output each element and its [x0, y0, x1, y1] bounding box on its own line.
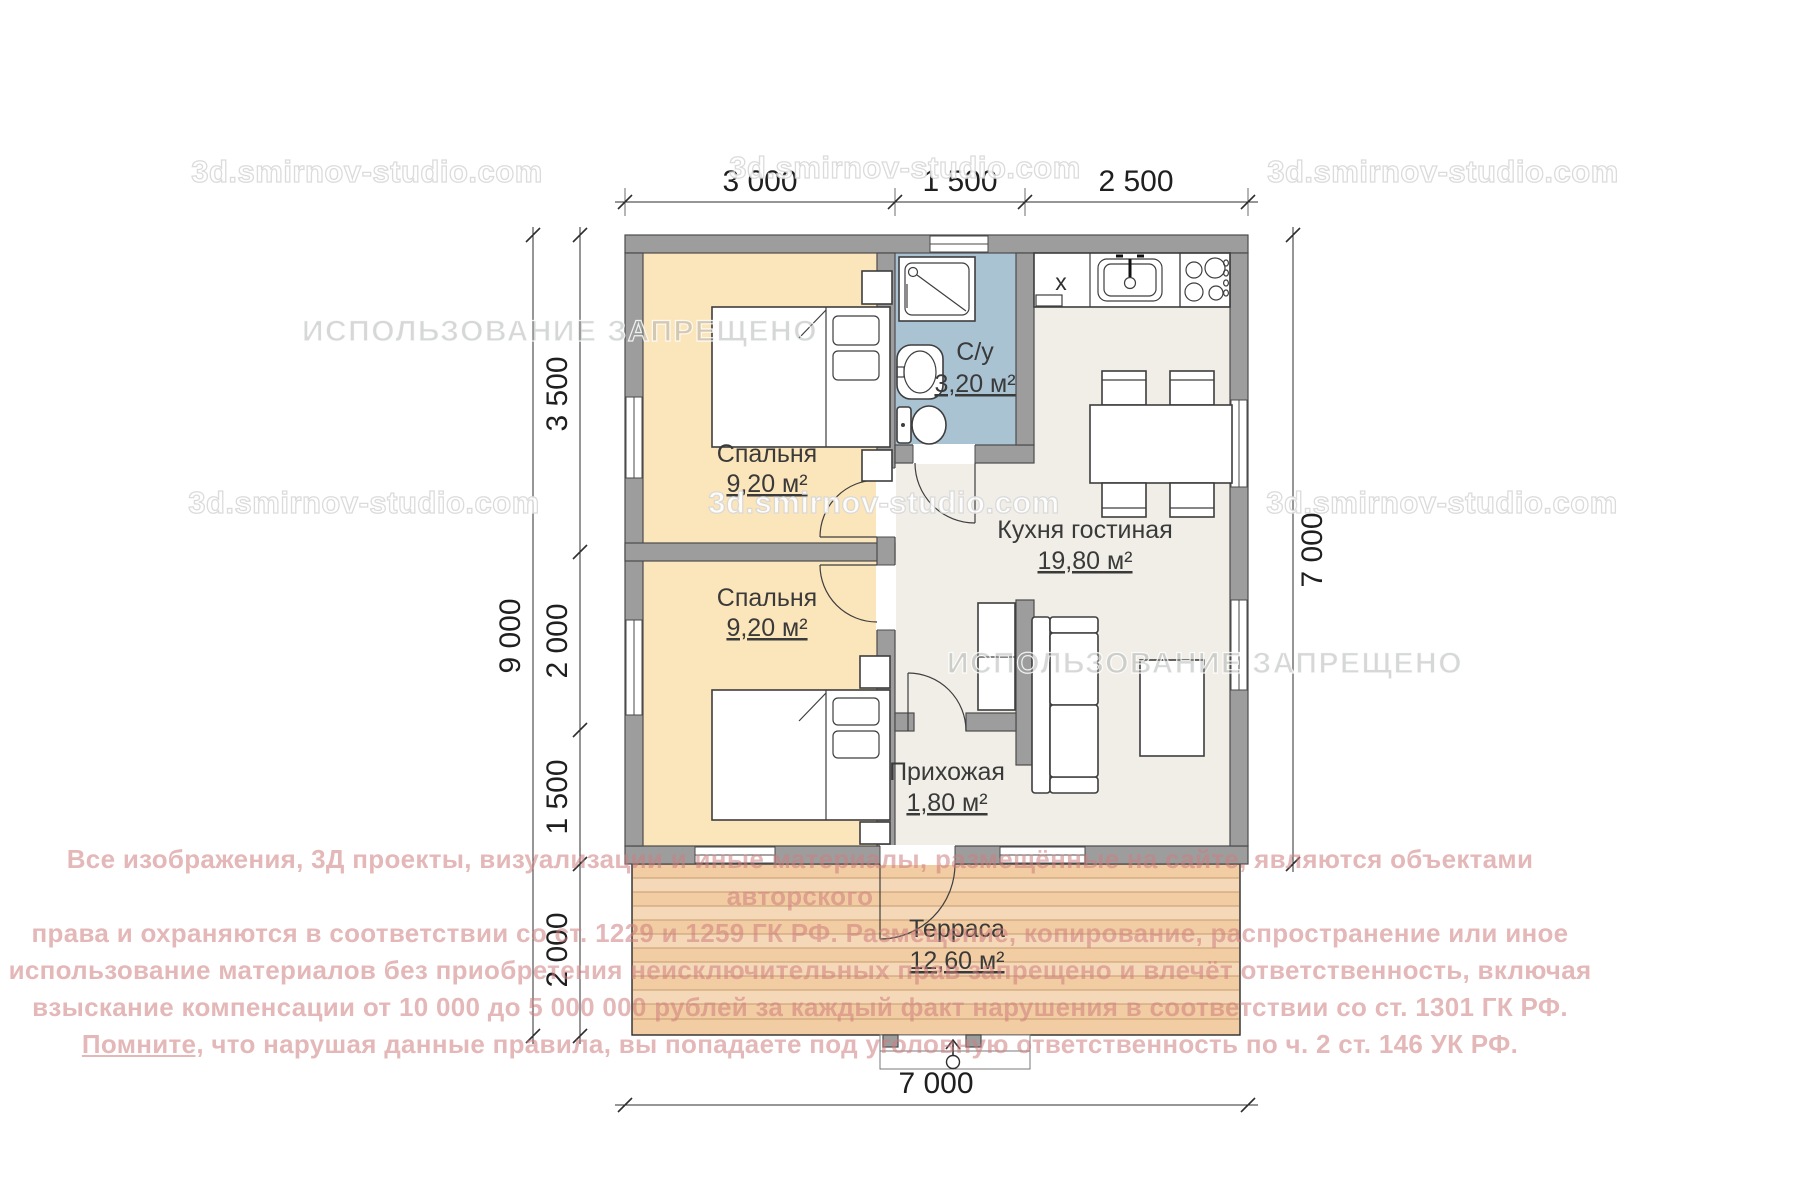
bed	[712, 307, 890, 447]
coffee-table	[1140, 660, 1204, 756]
dim-right-label: 7 000	[1296, 512, 1329, 587]
dim-left-segments: 3 500 2 000 1 500 2 000	[541, 227, 587, 1044]
dining-chair	[1170, 483, 1214, 517]
bedroom1-label: Спальня	[717, 440, 817, 468]
living-window-bottom	[1000, 847, 1085, 863]
hallway-cabinet	[978, 603, 1015, 710]
terrace-plank-band	[633, 878, 1239, 892]
bedroom1-area: 9,20 м²	[726, 470, 807, 498]
dining-table	[1090, 405, 1232, 483]
terrace-plank-band	[633, 990, 1239, 1004]
dining-chair	[1102, 483, 1146, 517]
dim-top-2: 1 500	[922, 165, 997, 198]
living-window-right-bottom	[1231, 600, 1247, 690]
hallway-label: Прихожая	[889, 758, 1005, 786]
dim-left-4: 2 000	[541, 912, 574, 987]
dim-top-3: 2 500	[1098, 165, 1173, 198]
bedroom2-label: Спальня	[717, 584, 817, 612]
dim-left-total: 9 000	[494, 227, 540, 1044]
kitchen-counter: x	[1034, 253, 1230, 307]
bathroom-door-gap	[913, 444, 975, 464]
nightstand	[860, 822, 890, 844]
wall-hallway-stub-right	[966, 713, 1016, 731]
nightstand	[862, 450, 892, 481]
dim-top: 3 000 1 500 2 500	[615, 165, 1258, 216]
terrace-label: Терраса	[909, 915, 1005, 943]
dim-left-2: 2 000	[541, 603, 574, 678]
wall-right	[1230, 253, 1248, 846]
dim-left-3: 1 500	[541, 759, 574, 834]
dim-left-total-label: 9 000	[494, 598, 527, 673]
porch-post-left	[883, 1035, 898, 1047]
bedroom2-door-gap	[876, 565, 896, 630]
sofa	[1032, 617, 1098, 793]
dim-right: 7 000	[1286, 227, 1329, 872]
bedroom2-window-bottom	[695, 847, 775, 863]
dim-left-1: 3 500	[541, 356, 574, 431]
bedroom2-area: 9,20 м²	[726, 614, 807, 642]
bathroom-label: С/у	[956, 338, 994, 366]
terrace-area: 12,60 м²	[909, 947, 1004, 975]
entrance-steps	[880, 1035, 1030, 1069]
floor-plan-page: x	[0, 0, 1800, 1200]
kitchen-living-label: Кухня гостиная	[997, 516, 1173, 544]
bathroom-window	[930, 236, 988, 252]
porch-post-right	[966, 1035, 981, 1047]
hallway-area: 1,80 м²	[906, 789, 987, 817]
entry-door-gap	[880, 845, 955, 865]
dining-chair	[1170, 371, 1214, 405]
kitchen-living-area: 19,80 м²	[1037, 547, 1132, 575]
floor-plan-drawing: x	[0, 0, 1800, 1200]
wall-bathroom-right	[1016, 253, 1034, 445]
living-window-right-top	[1231, 400, 1247, 487]
wall-hallway-stub-left	[895, 713, 914, 731]
bedroom2-window	[626, 620, 642, 715]
wall-bedrooms-divider	[625, 543, 895, 561]
dim-bottom: 7 000	[615, 1067, 1258, 1112]
bed	[712, 690, 890, 820]
dining-chair	[1102, 371, 1146, 405]
dim-top-1: 3 000	[722, 165, 797, 198]
nightstand	[860, 656, 890, 688]
bathroom-area: 3,20 м²	[934, 370, 1015, 398]
nightstand	[862, 271, 892, 304]
bedroom1-window	[626, 397, 642, 478]
shower-icon	[899, 257, 975, 321]
steps-outline	[880, 1035, 1030, 1069]
dim-bottom-label: 7 000	[898, 1067, 973, 1100]
fridge-label: x	[1055, 269, 1067, 295]
toilet-icon	[897, 406, 946, 444]
